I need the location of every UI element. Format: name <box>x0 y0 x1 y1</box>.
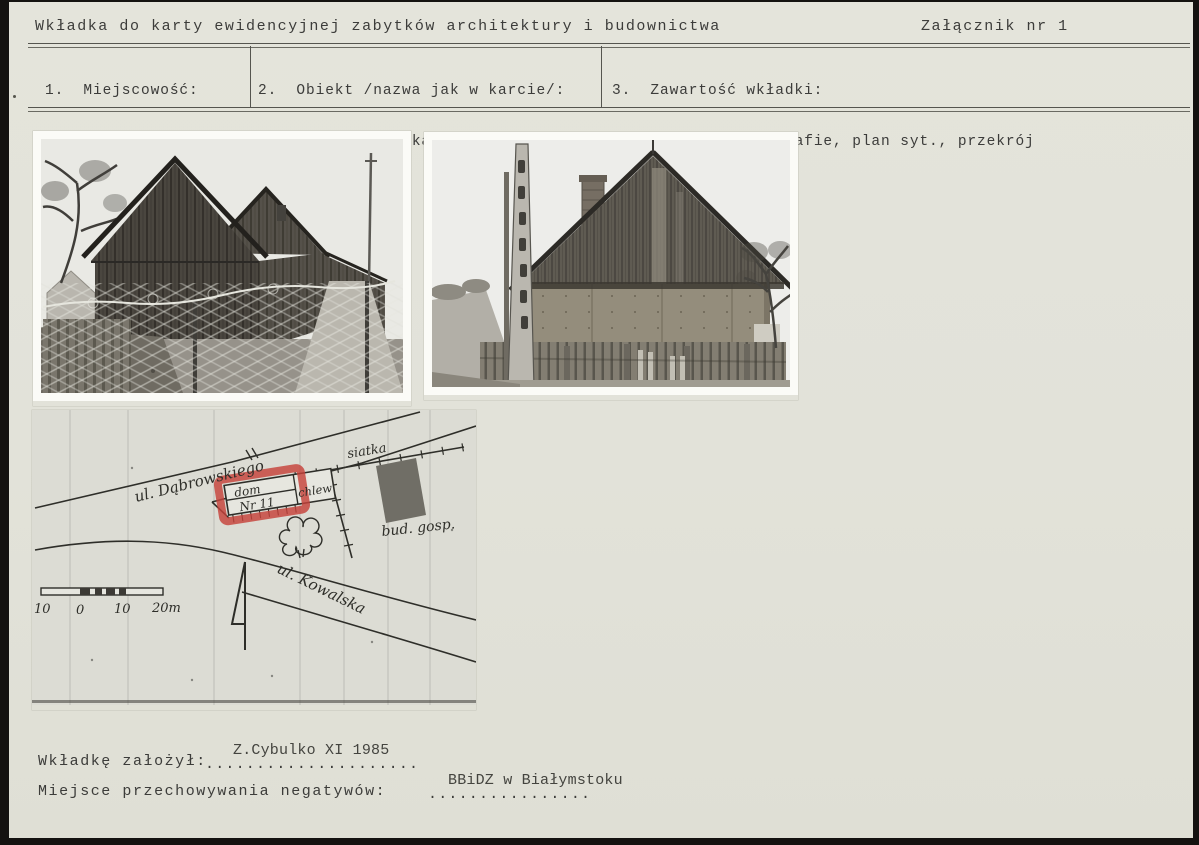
paper-speck <box>13 95 16 98</box>
cell2-label: Obiekt /nazwa jak w karcie/: <box>296 83 565 99</box>
negatives-dotted-line: ................ <box>428 786 591 803</box>
founder-dotted-line: ..................... <box>205 756 419 773</box>
photo-1-image <box>33 131 411 401</box>
scale-tick-10b: 10 <box>114 602 131 617</box>
cell2-number: 2. <box>258 83 277 99</box>
cell3-number: 3. <box>612 83 631 99</box>
site-plan-image: dom Nr 11 chlew 10 0 <box>32 410 476 705</box>
photo-house-gables-chainlink-fence <box>33 131 411 406</box>
founder-label: Wkładkę założył: <box>38 753 207 770</box>
table-divider-1 <box>250 46 251 107</box>
scale-tick-10a: 10 <box>34 602 51 617</box>
page-title: Wkładka do karty ewidencyjnej zabytków a… <box>35 18 721 35</box>
cell1-number: 1. <box>45 83 64 99</box>
wooden-pole <box>504 172 509 388</box>
site-plan-sketch: dom Nr 11 chlew 10 0 <box>32 410 476 710</box>
scale-tick-20m: 20m <box>151 601 181 616</box>
chain-link-fence <box>41 281 403 393</box>
photo-house-gable-paling-fence <box>424 132 798 400</box>
scanned-record-card: Wkładka do karty ewidencyjnej zabytków a… <box>0 0 1199 845</box>
negatives-label: Miejsce przechowywania negatywów: <box>38 783 386 800</box>
scale-tick-0: 0 <box>76 603 84 618</box>
table-divider-2 <box>601 46 602 107</box>
annex-label: Załącznik nr 1 <box>921 18 1069 35</box>
cell3-label: Zawartość wkładki: <box>650 83 823 99</box>
cell1-label: Miejscowość: <box>83 83 198 99</box>
table-top-border <box>28 43 1190 48</box>
photo-2-image <box>424 132 798 395</box>
